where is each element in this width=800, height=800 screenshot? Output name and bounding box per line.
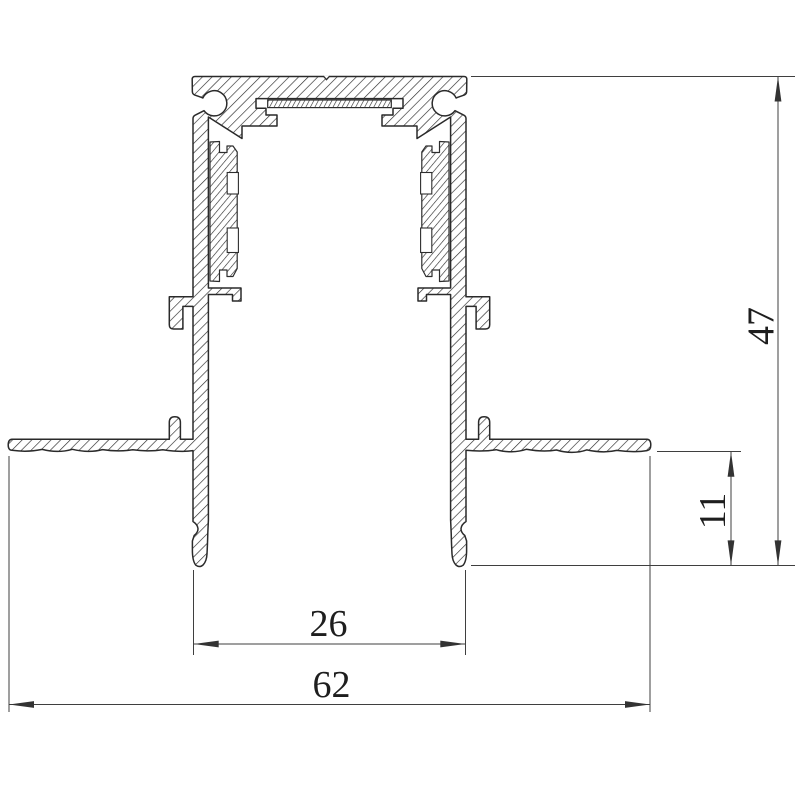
- svg-text:47: 47: [741, 307, 783, 345]
- svg-text:11: 11: [692, 493, 734, 530]
- svg-text:62: 62: [313, 664, 351, 706]
- svg-text:26: 26: [310, 603, 348, 645]
